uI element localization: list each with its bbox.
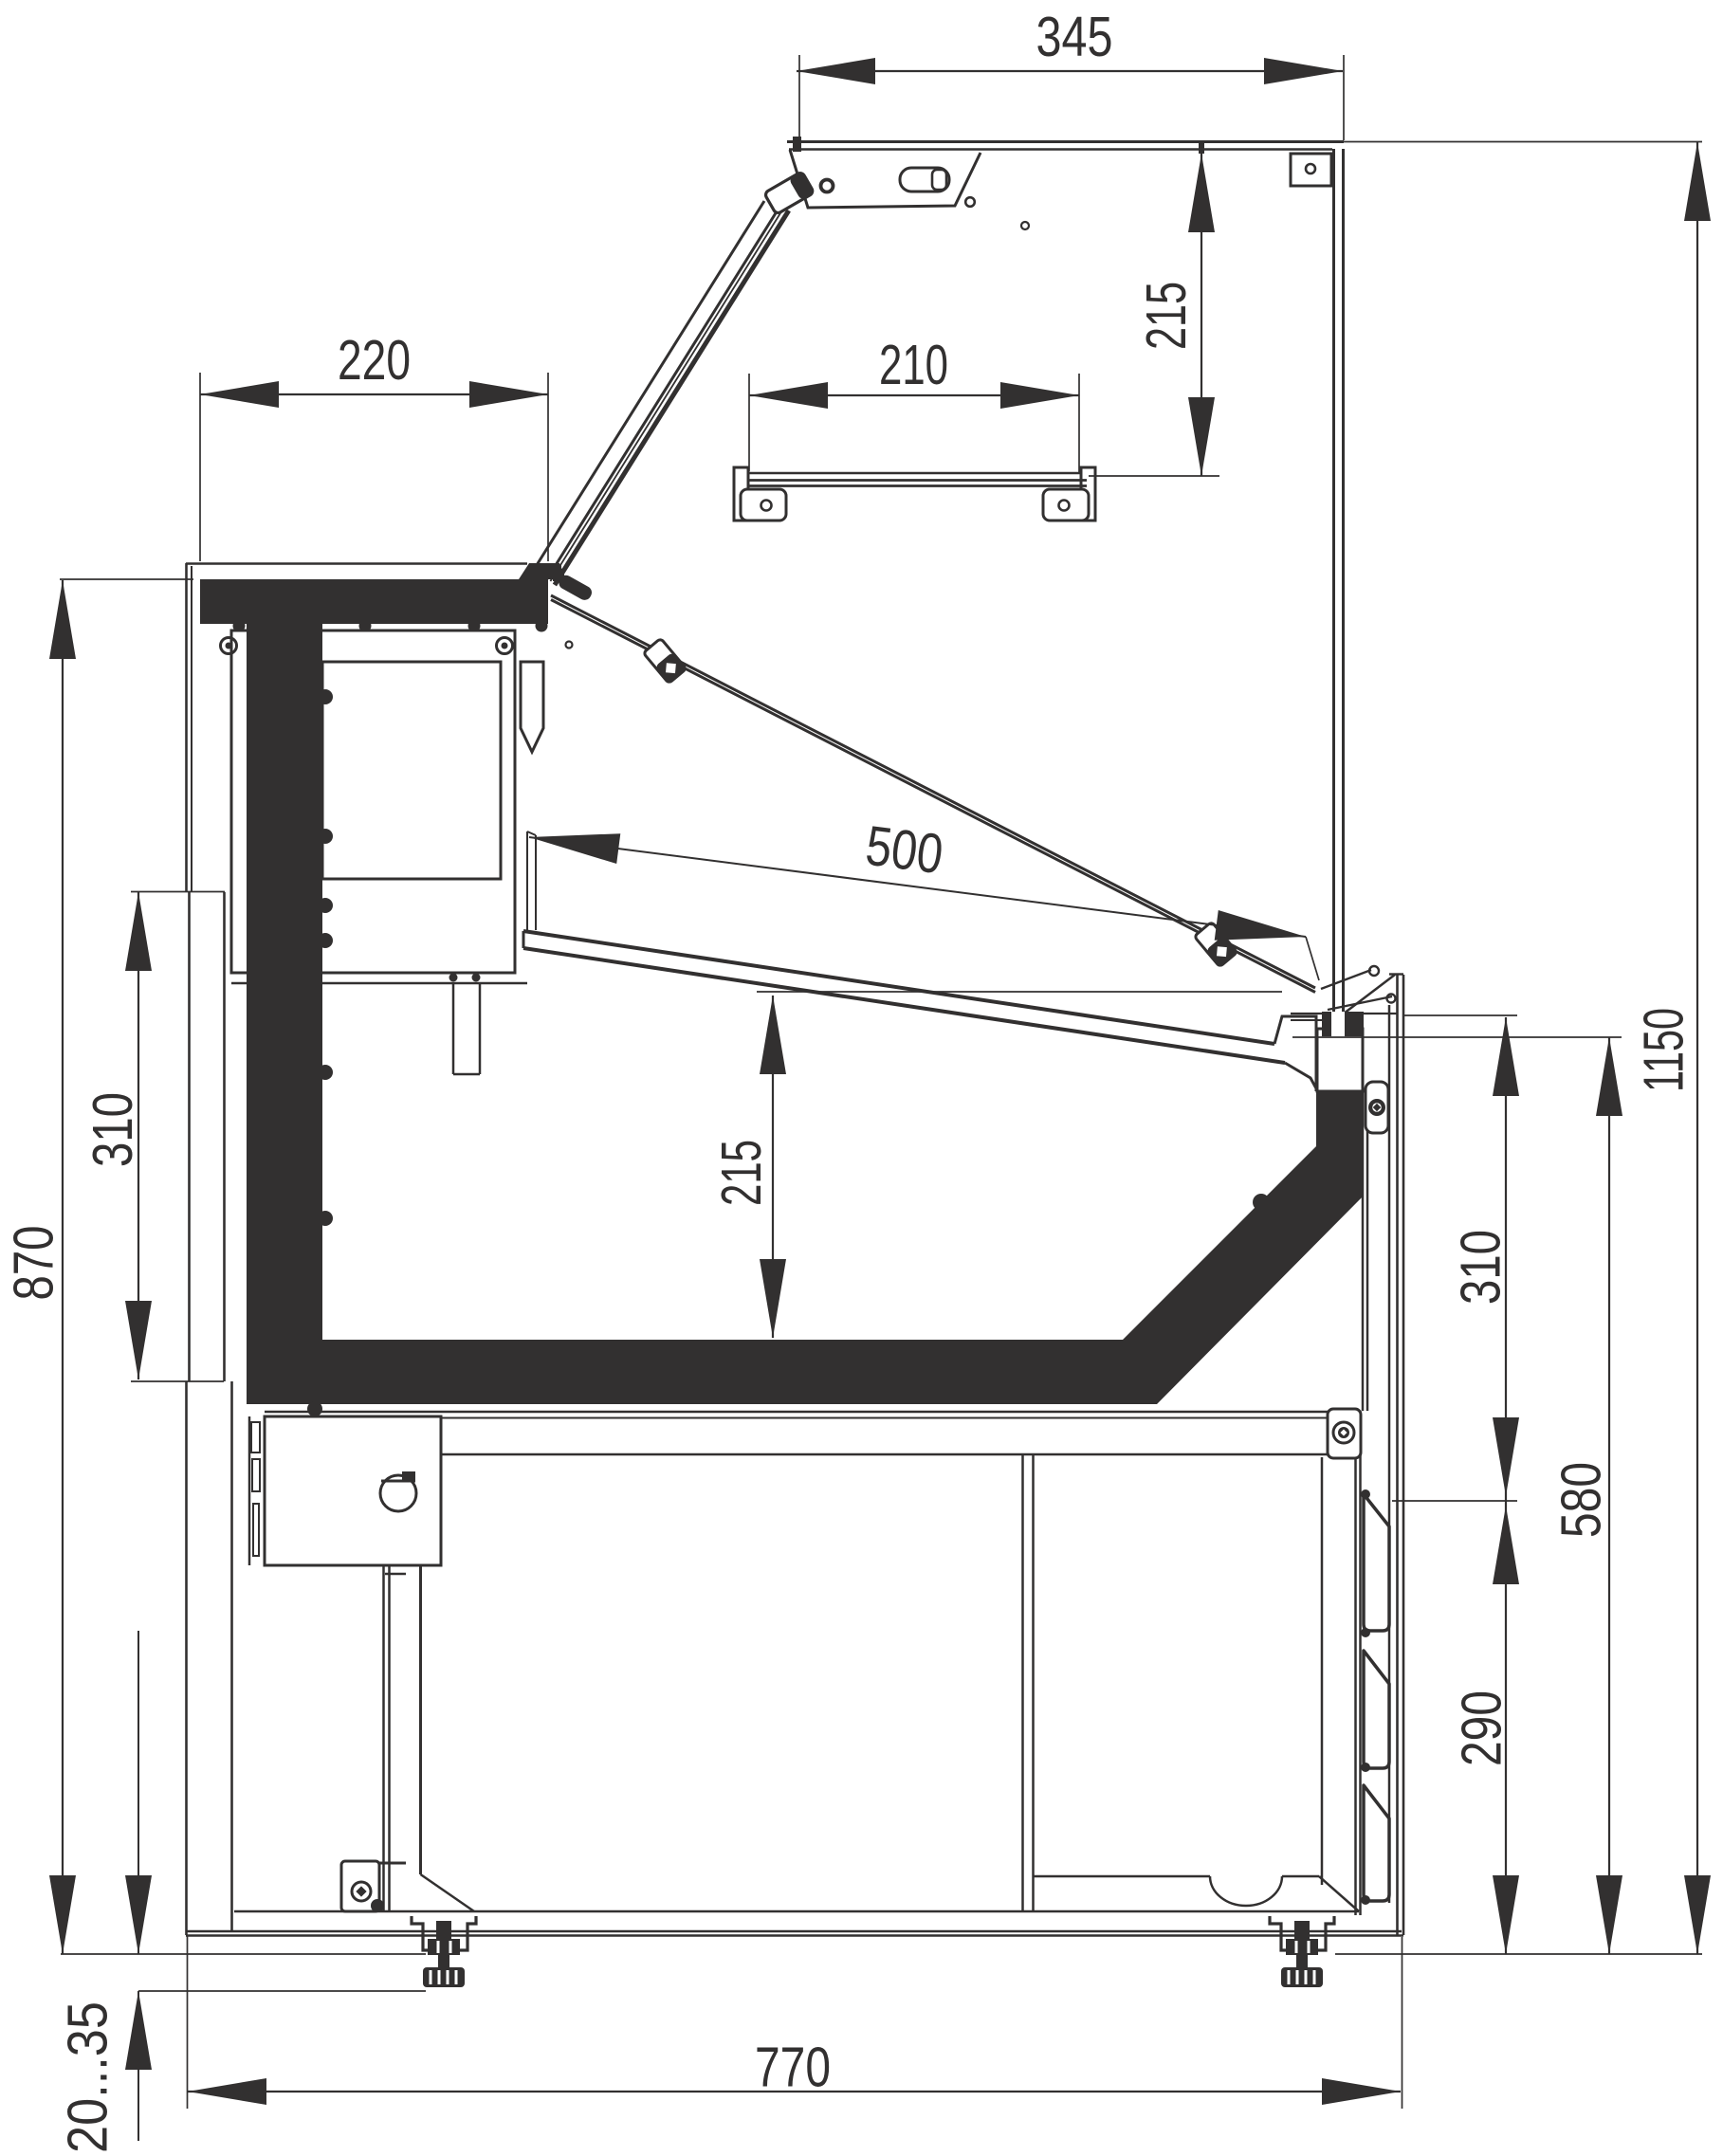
svg-text:310: 310 xyxy=(82,1092,144,1167)
svg-text:290: 290 xyxy=(1451,1690,1513,1766)
svg-text:215: 215 xyxy=(1135,282,1198,350)
svg-text:580: 580 xyxy=(1550,1462,1613,1538)
svg-text:220: 220 xyxy=(338,329,411,392)
svg-text:1150: 1150 xyxy=(1633,1008,1696,1092)
svg-text:20...35: 20...35 xyxy=(57,2001,119,2153)
svg-text:210: 210 xyxy=(879,334,948,396)
svg-text:770: 770 xyxy=(755,2037,831,2099)
svg-text:870: 870 xyxy=(3,1226,65,1301)
svg-text:215: 215 xyxy=(710,1140,773,1206)
svg-text:345: 345 xyxy=(1036,6,1113,68)
svg-text:310: 310 xyxy=(1450,1230,1512,1305)
svg-text:500: 500 xyxy=(862,814,946,886)
